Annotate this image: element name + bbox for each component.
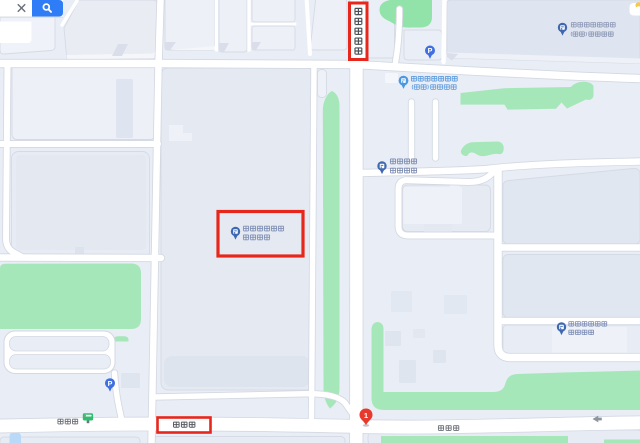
svg-text:P: P — [428, 46, 433, 55]
svg-text:P: P — [108, 379, 113, 388]
